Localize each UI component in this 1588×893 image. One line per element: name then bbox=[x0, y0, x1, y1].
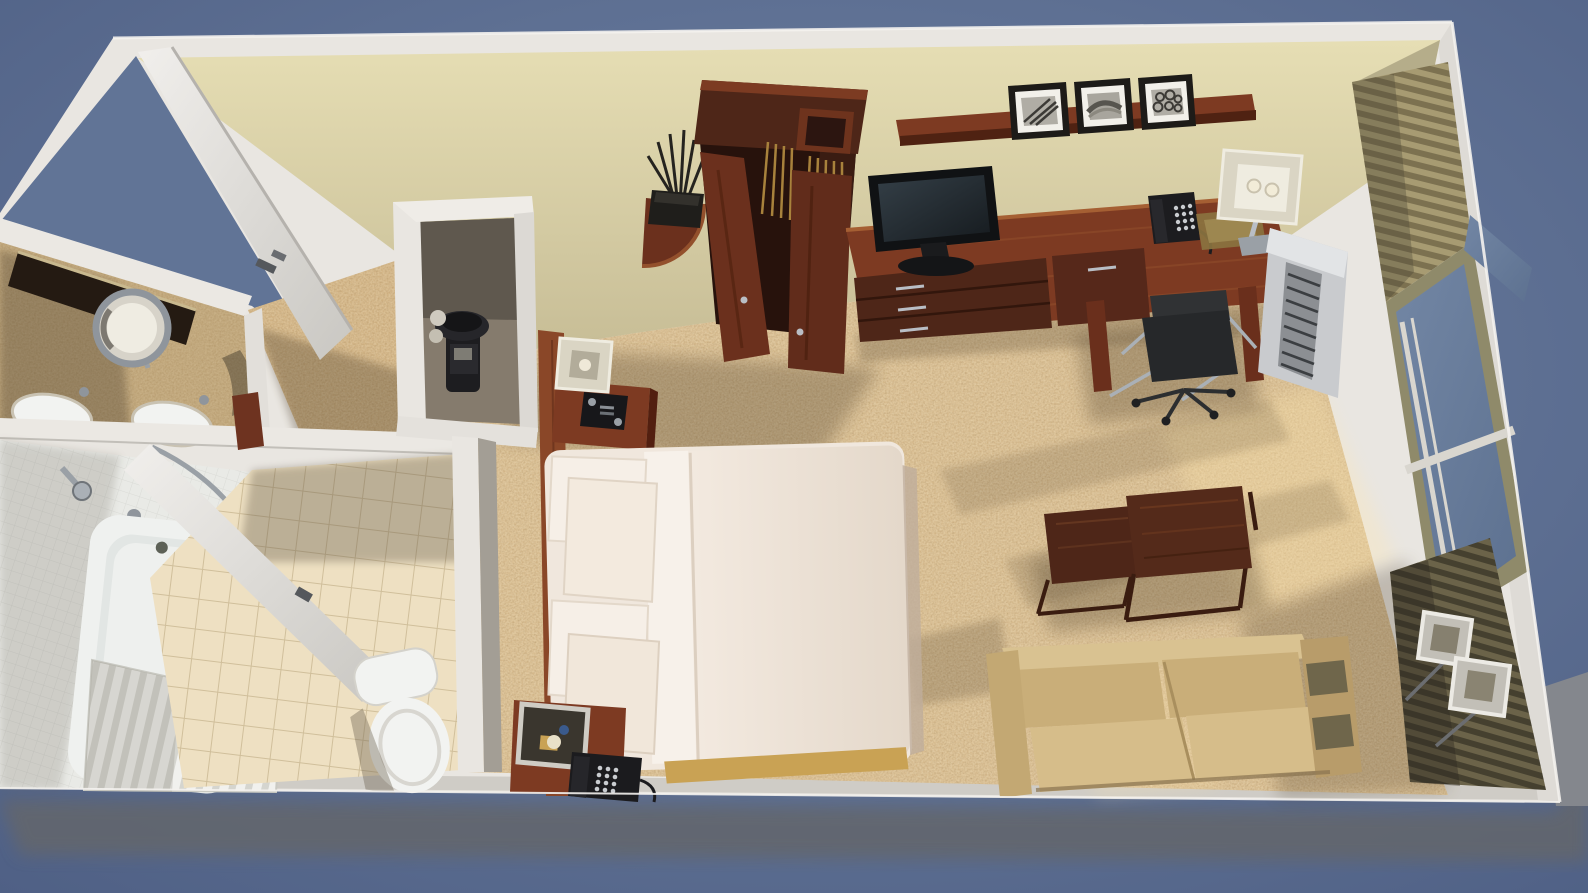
lamp-bulb-top bbox=[579, 359, 591, 371]
room-render bbox=[0, 0, 1588, 893]
ptac-ac-unit bbox=[1258, 228, 1348, 398]
table-lamp-top bbox=[556, 338, 612, 392]
towel-roll bbox=[430, 310, 446, 326]
shower-curtain-shade bbox=[84, 660, 180, 792]
closet-niche bbox=[393, 196, 538, 448]
chair-seat bbox=[1142, 310, 1238, 382]
magnifying-mirror bbox=[96, 292, 168, 368]
sofa-back-cushion-right bbox=[1162, 652, 1306, 718]
lamp-bulb-bottom bbox=[547, 735, 561, 749]
closet-interior-shade bbox=[418, 218, 518, 320]
tile-floor-shadow bbox=[238, 454, 462, 562]
wardrobe-door-left-handle bbox=[741, 297, 748, 304]
alarm-clock-radio bbox=[580, 392, 628, 430]
tv-screen bbox=[878, 175, 990, 242]
wardrobe-door-right-face bbox=[788, 170, 852, 374]
desk-lamp-shade-inner bbox=[1234, 164, 1290, 212]
sofa-seat-cushion-right bbox=[1186, 706, 1330, 780]
sofa-arm-shadow-stripe-2 bbox=[1312, 714, 1354, 750]
sofa bbox=[986, 634, 1362, 798]
sofa-arm-shadow-stripe-1 bbox=[1306, 660, 1348, 696]
towel-roll-2 bbox=[429, 329, 443, 343]
framed-print-2 bbox=[1074, 78, 1134, 134]
floor-lamp-1-shade-inner bbox=[1430, 624, 1460, 654]
wardrobe-shelf-box-inner bbox=[805, 116, 846, 148]
tv-base bbox=[898, 256, 974, 276]
pillow-front-1 bbox=[561, 476, 660, 604]
sofa-back-cushion-left bbox=[1014, 662, 1166, 728]
faucet-left bbox=[79, 387, 89, 397]
floor-lamp-2-shade-inner bbox=[1464, 670, 1496, 702]
wardrobe-door-right-handle bbox=[797, 329, 804, 336]
framed-print-3 bbox=[1138, 74, 1196, 130]
desk-lamp-bulb-2 bbox=[1266, 184, 1279, 197]
faucet-right bbox=[199, 395, 209, 405]
lamp-part-blue bbox=[559, 725, 569, 735]
framed-print-1 bbox=[1008, 82, 1070, 140]
desk-lamp-bulb-1 bbox=[1248, 180, 1261, 193]
render-canvas bbox=[0, 0, 1588, 893]
